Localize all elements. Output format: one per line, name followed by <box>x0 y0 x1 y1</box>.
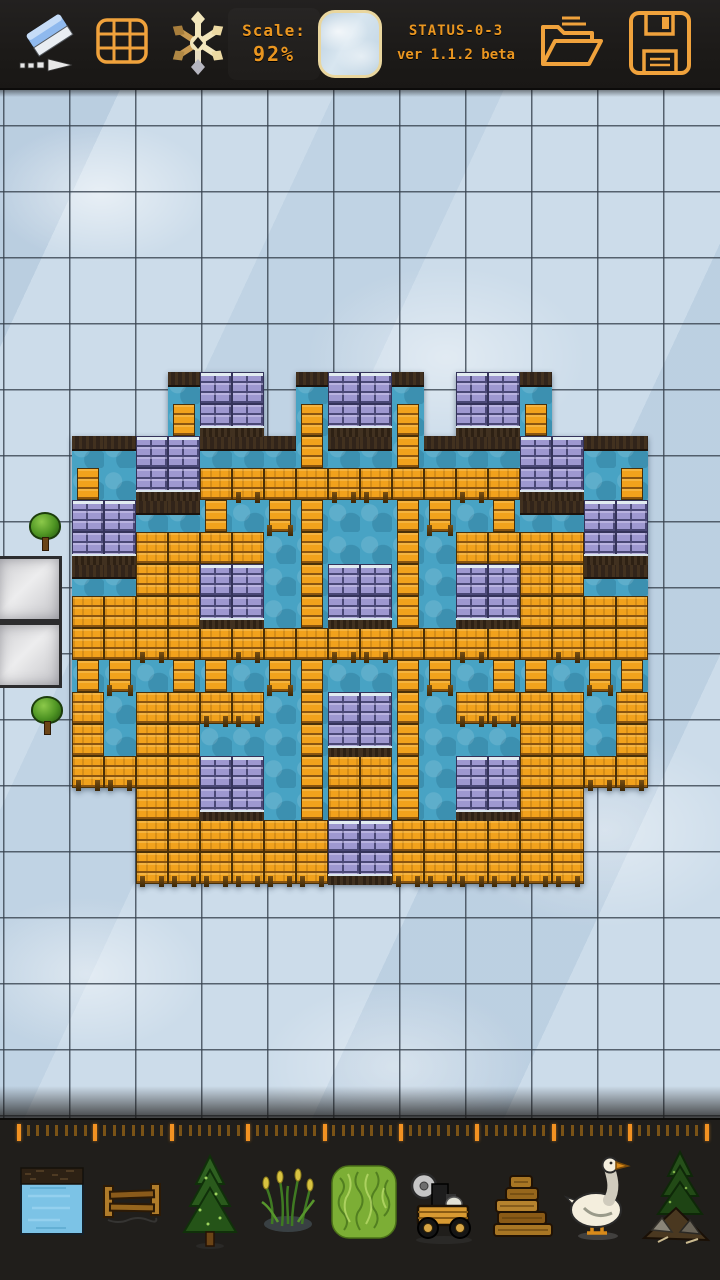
map-cell-plank <box>136 820 168 852</box>
map-cell-plank-post <box>168 404 200 436</box>
map-cell-plank-post <box>296 596 328 628</box>
map-cell-plank <box>264 820 296 852</box>
map-cell-brick <box>328 692 360 724</box>
map-cell-plank <box>136 532 168 564</box>
map-cell-plank <box>296 628 328 660</box>
ruler-minor-tick <box>437 1125 440 1136</box>
map-cell-brick <box>360 852 392 884</box>
map-cell-plank <box>104 756 136 788</box>
map-cell-plank-post <box>392 660 424 692</box>
map-cell-plank-post <box>392 724 424 756</box>
map-cell-plank <box>392 628 424 660</box>
map-cell-brick <box>488 788 520 820</box>
map-cell-plank <box>200 468 232 500</box>
map-cell-water-dirt <box>200 436 232 468</box>
wood-pile-icon <box>488 1154 560 1250</box>
map-cell-plank <box>72 628 104 660</box>
scale-label: Scale: <box>242 20 306 42</box>
map-cell-plank <box>488 628 520 660</box>
map-cell-brick <box>488 404 520 436</box>
map-cell-plank <box>616 724 648 756</box>
ruler-minor-tick <box>284 1125 287 1136</box>
map-cell-plank <box>168 724 200 756</box>
palette-item-pine-tree[interactable] <box>174 1154 246 1250</box>
map-cell-plank <box>200 820 232 852</box>
ruler-minor-tick <box>686 1125 689 1136</box>
ruler-minor-tick <box>256 1125 259 1136</box>
bottom-panel <box>0 1118 720 1280</box>
ice-tile-preview <box>318 10 382 78</box>
ruler-minor-tick <box>466 1125 469 1136</box>
palette-item-water-tile[interactable] <box>16 1146 88 1242</box>
ruler-minor-tick <box>36 1125 39 1136</box>
ruler-major-tick <box>705 1124 709 1141</box>
ruler-minor-tick <box>132 1125 135 1136</box>
map-cell-plank-post <box>392 564 424 596</box>
ruler-minor-tick <box>600 1125 603 1136</box>
map-cell-plank-post <box>200 500 232 532</box>
ruler-minor-tick <box>179 1125 182 1136</box>
map-cell-water-dirt <box>104 436 136 468</box>
map-cell-brick <box>104 500 136 532</box>
map-cell-plank <box>456 820 488 852</box>
ruler-minor-tick <box>151 1125 154 1136</box>
map-cell-plank <box>232 468 264 500</box>
map-cell-plank-post <box>72 660 104 692</box>
ruler-minor-tick <box>342 1125 345 1136</box>
map-cell-brick <box>552 436 584 468</box>
ruler-minor-tick <box>237 1125 240 1136</box>
map-cell-plank <box>296 820 328 852</box>
map-cell-water <box>488 724 520 756</box>
map-cell-water-dirt <box>616 436 648 468</box>
palette-item-tree-with-rocks[interactable] <box>640 1150 712 1246</box>
ruler-minor-tick <box>313 1125 316 1136</box>
map-cell-water-dirt <box>584 564 616 596</box>
map-cell-water <box>104 692 136 724</box>
map-cell-water <box>584 468 616 500</box>
ruler-major-tick <box>628 1124 632 1141</box>
map-cell-plank-post <box>104 660 136 692</box>
map-cell-plank <box>136 564 168 596</box>
ruler-minor-tick <box>389 1125 392 1136</box>
map-cell-brick <box>328 564 360 596</box>
map-cell-plank-post <box>584 660 616 692</box>
map-cell-water <box>552 660 584 692</box>
map-cell-water <box>232 660 264 692</box>
map-cell-brick <box>72 532 104 564</box>
status-code: STATUS-0-3 <box>409 22 503 41</box>
palette-item-wood-pile[interactable] <box>488 1154 560 1250</box>
map-cell-plank <box>616 596 648 628</box>
map-cell-water <box>264 596 296 628</box>
map-cell-plank <box>328 468 360 500</box>
snowflake-tool-button[interactable] <box>162 8 234 82</box>
map-cell-brick <box>328 596 360 628</box>
map-cell-plank-post <box>392 788 424 820</box>
map-cell-water-dirt <box>392 372 424 404</box>
ruler-minor-tick <box>456 1125 459 1136</box>
map-cell-plank <box>168 756 200 788</box>
water-tile-icon <box>16 1146 88 1242</box>
map-cell-water-dirt <box>136 500 168 532</box>
map-cell-water <box>264 724 296 756</box>
map-cell-water <box>360 532 392 564</box>
map-cell-plank <box>328 756 360 788</box>
map-cell-brick <box>328 372 360 404</box>
ruler-minor-tick <box>523 1125 526 1136</box>
map-cell-plank <box>392 468 424 500</box>
map-cell-plank <box>136 724 168 756</box>
map-cell-plank <box>520 756 552 788</box>
map-cell-brick <box>168 436 200 468</box>
map-cell-water-dirt <box>72 436 104 468</box>
map-cell-water <box>584 692 616 724</box>
map-cell-water <box>264 788 296 820</box>
map-cell-plank <box>136 852 168 884</box>
map-cell-brick <box>136 436 168 468</box>
ruler-minor-tick <box>55 1125 58 1136</box>
ruler-minor-tick <box>495 1125 498 1136</box>
map-cell-brick <box>488 756 520 788</box>
map-cell-plank <box>552 532 584 564</box>
map-cell-plank <box>456 628 488 660</box>
ruler-minor-tick <box>580 1125 583 1136</box>
map-cell-brick <box>232 404 264 436</box>
map-cell-plank <box>264 852 296 884</box>
palette-item-fence[interactable] <box>96 1148 168 1244</box>
map-cell-plank <box>136 596 168 628</box>
map-cell-brick <box>456 596 488 628</box>
map-cell-plank <box>520 596 552 628</box>
pine-tree-icon <box>174 1154 246 1250</box>
ruler-minor-tick <box>46 1125 49 1136</box>
map-cell-brick <box>232 756 264 788</box>
map-cell-water <box>328 500 360 532</box>
map-cell-plank <box>264 468 296 500</box>
ruler-minor-tick <box>647 1125 650 1136</box>
map-cell-water <box>264 532 296 564</box>
ruler-major-tick <box>170 1124 174 1141</box>
snowflake-icon <box>164 7 232 83</box>
scale-indicator[interactable]: Scale: 92% <box>228 8 320 80</box>
ruler-minor-tick <box>65 1125 68 1136</box>
tile-preview-button[interactable] <box>316 10 384 78</box>
map-cell-plank-post <box>296 692 328 724</box>
map-cell-water-dirt <box>584 436 616 468</box>
ruler-minor-tick <box>409 1125 412 1136</box>
map-cell-plank-post <box>488 660 520 692</box>
toolbar: Scale: 92% STATUS-0-3 ver 1.1.2 beta <box>0 0 720 90</box>
map-cell-plank <box>168 788 200 820</box>
map-cell-plank-post <box>72 468 104 500</box>
map-cell-plank <box>552 788 584 820</box>
map-cell-brick <box>200 372 232 404</box>
ruler-minor-tick <box>361 1125 364 1136</box>
map-cell-plank <box>136 628 168 660</box>
map-cell-plank <box>136 788 168 820</box>
map-cell-plank <box>328 788 360 820</box>
map-cell-plank-post <box>296 532 328 564</box>
saw-cart-icon <box>406 1154 478 1250</box>
map-cell-plank-post <box>488 500 520 532</box>
ruler-minor-tick <box>619 1125 622 1136</box>
map-cell-water-dirt <box>520 500 552 532</box>
map-cell-plank <box>168 852 200 884</box>
map-editor-app: { "app": { "name": "tile map editor", "a… <box>0 0 720 1280</box>
open-file-button[interactable] <box>534 10 610 80</box>
map-cell-brick <box>584 500 616 532</box>
ruler-minor-tick <box>208 1125 211 1136</box>
map-cell-plank-post <box>616 660 648 692</box>
map-cell-plank <box>360 756 392 788</box>
ruler-minor-tick <box>332 1125 335 1136</box>
ruler-minor-tick <box>189 1125 192 1136</box>
fence-icon <box>96 1148 168 1244</box>
map-cell-water-dirt <box>360 436 392 468</box>
map-cell-water-dirt <box>328 436 360 468</box>
ruler-minor-tick <box>84 1125 87 1136</box>
eraser-icon <box>12 10 86 80</box>
map-cell-plank <box>168 628 200 660</box>
ruler-minor-tick <box>27 1125 30 1136</box>
map-cell-plank <box>72 724 104 756</box>
ruler-minor-tick <box>418 1125 421 1136</box>
ruler-minor-tick <box>533 1125 536 1136</box>
map-cell-plank <box>72 596 104 628</box>
map-cell-plank <box>72 692 104 724</box>
map-cell-water <box>264 756 296 788</box>
map-cell-plank <box>360 628 392 660</box>
map-cell-plank-post <box>296 500 328 532</box>
ruler-minor-tick <box>265 1125 268 1136</box>
palette-item-grass-tile[interactable] <box>328 1148 400 1244</box>
map-cell-plank <box>616 692 648 724</box>
map-cell-plank <box>552 596 584 628</box>
map-cell-plank <box>200 852 232 884</box>
map-cell-plank <box>264 628 296 660</box>
eraser-button[interactable] <box>10 10 88 80</box>
map-cell-water-dirt <box>168 500 200 532</box>
grass-tile-icon <box>328 1148 400 1244</box>
map-cell-plank <box>232 532 264 564</box>
map-cell-plank <box>456 852 488 884</box>
map-cell-plank <box>104 596 136 628</box>
map-cell-plank <box>552 852 584 884</box>
map-cell-brick <box>360 596 392 628</box>
map-cell-brick <box>232 596 264 628</box>
ruler-minor-tick <box>428 1125 431 1136</box>
map-cell-brick <box>232 372 264 404</box>
map-cell-water <box>328 660 360 692</box>
ruler-minor-tick <box>514 1125 517 1136</box>
ruler-minor-tick <box>122 1125 125 1136</box>
map-cell-plank <box>520 564 552 596</box>
ruler-minor-tick <box>695 1125 698 1136</box>
map-cell-brick <box>200 564 232 596</box>
palette-item-goose[interactable] <box>564 1150 636 1246</box>
map-cell-brick <box>328 404 360 436</box>
map-cell-plank <box>424 820 456 852</box>
map-cell-plank <box>552 628 584 660</box>
map-cell-water <box>424 692 456 724</box>
map-cell-plank <box>360 468 392 500</box>
map-cell-plank <box>584 628 616 660</box>
map-cell-water <box>264 564 296 596</box>
map-cell-water <box>456 724 488 756</box>
map-canvas[interactable] <box>0 90 720 1118</box>
map-cell-brick <box>200 596 232 628</box>
map-cell-plank-post <box>264 500 296 532</box>
map-cell-water-dirt <box>296 372 328 404</box>
ruler-minor-tick <box>198 1125 201 1136</box>
map-cell-water <box>232 500 264 532</box>
map-cell-plank <box>488 852 520 884</box>
map-cell-plank <box>520 820 552 852</box>
map-cell-brick <box>360 564 392 596</box>
map-cell-brick <box>360 692 392 724</box>
map-cell-brick <box>360 372 392 404</box>
map-cell-plank <box>456 532 488 564</box>
map-cell-plank <box>424 852 456 884</box>
map-cell-water-dirt <box>72 564 104 596</box>
map-cell-plank <box>168 820 200 852</box>
ruler-minor-tick <box>504 1125 507 1136</box>
map-cell-plank <box>136 692 168 724</box>
map-cell-brick <box>328 724 360 756</box>
map-cell-brick <box>232 564 264 596</box>
palette-item-saw-cart[interactable] <box>406 1154 478 1250</box>
map-cell-plank <box>552 820 584 852</box>
map-cell-brick <box>328 852 360 884</box>
map-cell-plank <box>360 788 392 820</box>
map-cell-plank-post <box>392 692 424 724</box>
map-cell-plank-post <box>296 564 328 596</box>
map-cell-water <box>584 724 616 756</box>
map-cell-brick <box>200 756 232 788</box>
map-cell-brick <box>488 596 520 628</box>
map-cell-water-dirt <box>232 436 264 468</box>
map-cell-plank-post <box>520 404 552 436</box>
map-cell-water <box>456 500 488 532</box>
map-cell-plank <box>168 596 200 628</box>
map-cell-plank-post <box>424 660 456 692</box>
map-cell-plank <box>232 852 264 884</box>
map-cell-plank-post <box>296 756 328 788</box>
map-cell-brick <box>456 756 488 788</box>
grid-toggle-button[interactable] <box>92 14 152 72</box>
map-cell-plank-post <box>264 660 296 692</box>
ruler-minor-tick <box>571 1125 574 1136</box>
map-cell-water <box>104 468 136 500</box>
ruler-minor-tick <box>103 1125 106 1136</box>
map-cell-plank <box>520 788 552 820</box>
map-cell-plank-post <box>296 436 328 468</box>
ruler-minor-tick <box>590 1125 593 1136</box>
map-cell-plank <box>232 628 264 660</box>
ruler-major-tick <box>475 1124 479 1141</box>
ruler-minor-tick <box>113 1125 116 1136</box>
map-cell-plank-post <box>520 660 552 692</box>
ruler-minor-tick <box>227 1125 230 1136</box>
map-cell-plank <box>488 468 520 500</box>
map-cell-water-dirt <box>456 436 488 468</box>
map-cell-plank <box>136 756 168 788</box>
save-file-button[interactable] <box>626 10 694 80</box>
map-cell-plank <box>552 724 584 756</box>
map-cell-water-dirt <box>104 564 136 596</box>
map-cell-brick <box>616 532 648 564</box>
ruler-minor-tick <box>447 1125 450 1136</box>
map-cell-water <box>104 724 136 756</box>
map-cell-water <box>424 532 456 564</box>
map-cell-plank-post <box>392 500 424 532</box>
map-cell-plank <box>552 692 584 724</box>
map-cell-brick <box>488 372 520 404</box>
map-cell-brick <box>104 532 136 564</box>
map-cell-plank-post <box>296 404 328 436</box>
map-cell-brick <box>520 468 552 500</box>
map-cell-brick <box>72 500 104 532</box>
map-cell-plank-post <box>392 436 424 468</box>
map-cell-water <box>232 724 264 756</box>
status-info: STATUS-0-3 ver 1.1.2 beta <box>382 10 530 76</box>
ruler-major-tick <box>552 1124 556 1141</box>
map-cell-brick <box>616 500 648 532</box>
map-cell-plank <box>520 532 552 564</box>
map-cell-brick <box>168 468 200 500</box>
map-cell-plank <box>520 852 552 884</box>
map-cell-water <box>264 692 296 724</box>
ruler-minor-tick <box>485 1125 488 1136</box>
ruler-minor-tick <box>74 1125 77 1136</box>
ruler-minor-tick <box>676 1125 679 1136</box>
map-cell-plank <box>520 628 552 660</box>
tree-with-rocks-icon <box>640 1150 712 1246</box>
ruler-minor-tick <box>561 1125 564 1136</box>
ruler-minor-tick <box>380 1125 383 1136</box>
map-cell-brick <box>360 820 392 852</box>
ruler-minor-tick <box>294 1125 297 1136</box>
map-cell-plank <box>200 532 232 564</box>
built-structure <box>0 90 720 1118</box>
map-cell-water-dirt <box>424 436 456 468</box>
map-cell-water <box>424 756 456 788</box>
ruler <box>0 1124 720 1146</box>
map-cell-plank-post <box>296 788 328 820</box>
map-cell-plank <box>168 564 200 596</box>
map-cell-water <box>328 532 360 564</box>
map-cell-plank-post <box>296 724 328 756</box>
map-cell-water-dirt <box>520 372 552 404</box>
open-folder-icon <box>536 11 608 79</box>
map-cell-plank <box>392 852 424 884</box>
tile-palette <box>0 1146 720 1280</box>
map-cell-brick <box>360 724 392 756</box>
palette-item-reeds[interactable] <box>252 1148 324 1244</box>
save-floppy-icon <box>628 10 692 80</box>
map-cell-plank-post <box>392 404 424 436</box>
map-cell-plank <box>392 820 424 852</box>
map-cell-plank <box>424 628 456 660</box>
goose-icon <box>564 1150 636 1246</box>
ruler-major-tick <box>17 1124 21 1141</box>
map-cell-plank <box>520 724 552 756</box>
map-cell-brick <box>200 404 232 436</box>
grid-icon <box>95 17 149 69</box>
map-cell-plank <box>552 564 584 596</box>
map-cell-plank <box>104 628 136 660</box>
